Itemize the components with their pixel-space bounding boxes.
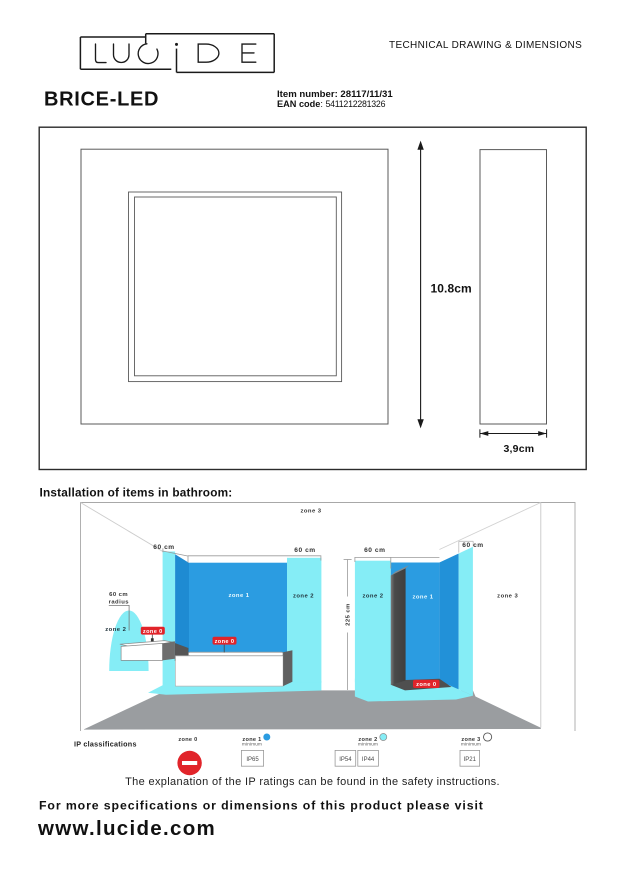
svg-text:www.lucide.com: www.lucide.com xyxy=(37,817,216,840)
svg-text:3,9cm: 3,9cm xyxy=(504,443,535,455)
svg-text:zone 3: zone 3 xyxy=(497,594,518,600)
svg-text:zone 2: zone 2 xyxy=(293,594,314,600)
svg-text:zone 0: zone 0 xyxy=(143,629,163,635)
svg-text:minimum: minimum xyxy=(242,741,262,746)
svg-text:radius: radius xyxy=(109,599,130,605)
svg-text:minimum: minimum xyxy=(461,741,481,746)
svg-text:zone 1: zone 1 xyxy=(412,595,433,601)
svg-text:zone 2: zone 2 xyxy=(105,627,126,633)
svg-text:60 cm: 60 cm xyxy=(364,547,385,554)
svg-text:zone 1: zone 1 xyxy=(228,593,249,599)
svg-text:zone 0: zone 0 xyxy=(178,737,197,743)
svg-text:BRICE-LED: BRICE-LED xyxy=(44,89,159,111)
svg-text:225 cm: 225 cm xyxy=(345,603,351,626)
svg-text:zone 0: zone 0 xyxy=(416,682,436,688)
svg-text:zone 3: zone 3 xyxy=(300,509,321,515)
svg-text:60 cm: 60 cm xyxy=(462,542,483,549)
svg-text:zone 2: zone 2 xyxy=(362,594,383,600)
svg-text:IP65: IP65 xyxy=(246,757,259,763)
svg-text:IP54: IP54 xyxy=(339,757,352,763)
svg-text:60 cm: 60 cm xyxy=(109,592,128,598)
svg-text:IP classifications: IP classifications xyxy=(74,740,137,749)
svg-text:60 cm: 60 cm xyxy=(153,544,174,551)
svg-text:IP21: IP21 xyxy=(464,757,477,763)
svg-text:TECHNICAL DRAWING & DIMENSIONS: TECHNICAL DRAWING & DIMENSIONS xyxy=(389,40,582,51)
svg-text:For more specifications or dim: For more specifications or dimensions of… xyxy=(39,798,484,812)
svg-text:IP44: IP44 xyxy=(362,757,375,763)
svg-text:Installation of items in bathr: Installation of items in bathroom: xyxy=(40,485,233,499)
svg-text:EAN code: 5411212281326: EAN code: 5411212281326 xyxy=(277,99,386,109)
svg-text:zone 0: zone 0 xyxy=(215,639,235,645)
svg-text:The explanation of the IP rati: The explanation of the IP ratings can be… xyxy=(125,776,500,788)
svg-text:minimum: minimum xyxy=(358,741,378,746)
svg-text:60 cm: 60 cm xyxy=(294,547,315,554)
svg-text:10.8cm: 10.8cm xyxy=(431,281,472,295)
